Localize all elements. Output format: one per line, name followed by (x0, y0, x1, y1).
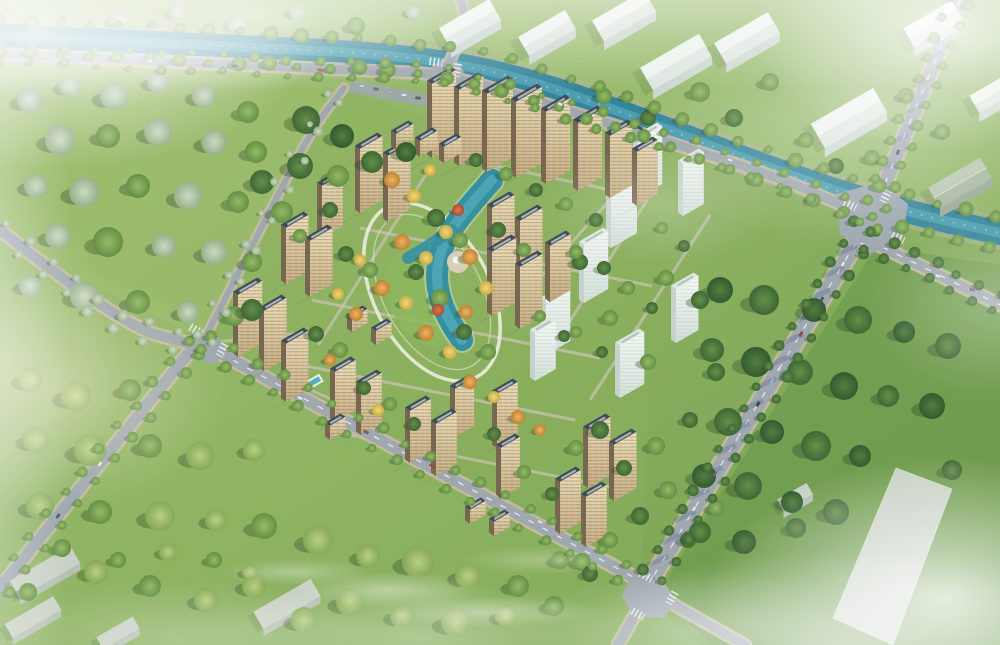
global-haze (0, 0, 1000, 645)
aerial-masterplan-render (0, 0, 1000, 645)
atmosphere (0, 0, 1000, 645)
render-canvas (0, 0, 1000, 645)
